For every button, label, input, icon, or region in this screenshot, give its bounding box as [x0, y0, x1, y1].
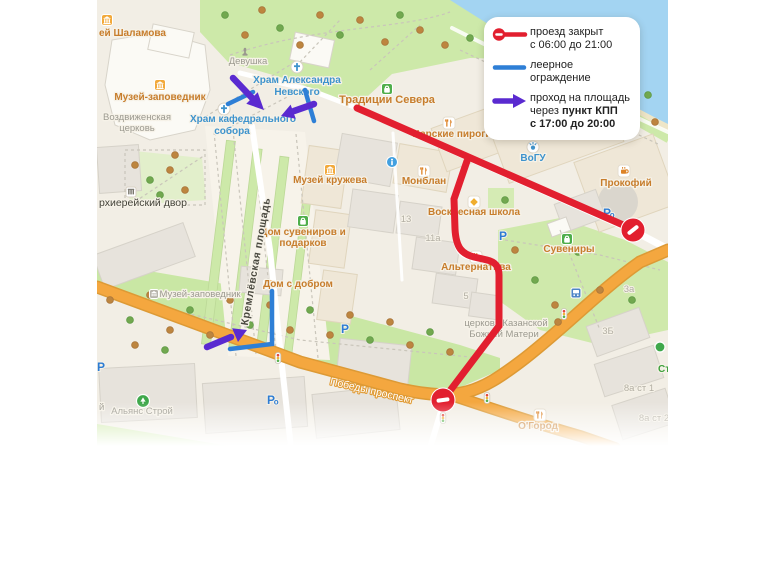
bus-stop-icon: [571, 288, 581, 298]
parking-icon-1: Р: [97, 360, 105, 374]
alexander-nevsky-line2-label: Невского: [274, 87, 319, 98]
parking-icon-2: Р: [341, 322, 349, 336]
kazan-church-line1-label: церковь Казанской: [464, 318, 547, 329]
cut-label-y-label: й: [99, 402, 104, 413]
legend-item-entrance-arrow: проход на площадьчерез пункт КППс 17:00 …: [492, 92, 630, 131]
bldg-8a-st1-label: 8а ст 1: [624, 383, 654, 394]
traffic-light-icon-4: [561, 309, 567, 320]
kazan-church-line2-label: Божией Матери: [469, 329, 539, 340]
no-entry-icon-2: [431, 388, 455, 412]
parking-icon-5: Р: [499, 229, 507, 243]
barrier-symbol: [492, 59, 530, 80]
cafe-icon-2: [618, 165, 630, 177]
cut-label-st-label: Ст: [658, 364, 670, 375]
legend-item-barrier: леерноеограждение: [492, 59, 630, 85]
prokofiy-label: Прокофий: [600, 177, 651, 189]
food-icon-3: [534, 409, 546, 421]
vozdvizhenskaya-line1-label: Воздвиженская: [103, 112, 171, 123]
alexander-nevsky-line1-label: Храм Александра: [253, 75, 341, 86]
food-icon-1: [443, 117, 455, 129]
closed-road-symbol: [492, 27, 528, 42]
cathedral-line1-label: Храм кафедрального: [190, 113, 296, 125]
bishops-court-label: рхиерейский двор: [99, 197, 187, 209]
vogu-label: ВоГУ: [520, 153, 546, 164]
barrier-symbol: [492, 60, 528, 75]
svg-text:о: о: [274, 398, 279, 407]
lawn-small: [488, 188, 514, 208]
traffic-light-icon-1: [275, 353, 281, 364]
bldg-3a-label: 3а: [624, 284, 635, 295]
info-icon: [387, 157, 398, 168]
event-poster: РРРоРоР ей ШаламоваМузей-заповедникВоздв…: [0, 0, 760, 570]
lace-museum-label: Музей кружева: [293, 175, 367, 186]
bldg-8a-st2-label: 8а ст 2: [639, 413, 669, 424]
cathedral-line2-label: собора: [214, 125, 250, 137]
svg-text:Р: Р: [341, 322, 349, 336]
svg-text:Р: Р: [97, 360, 105, 374]
suveniry-label: Сувениры: [543, 244, 594, 255]
landmark-icon: [126, 187, 136, 197]
shop-icon-3: [562, 234, 573, 245]
map-canvas: РРРоРоР ей ШаламоваМузей-заповедникВоздв…: [0, 0, 760, 450]
map: РРРоРоР ей ШаламоваМузей-заповедникВоздв…: [0, 0, 760, 450]
museum-icon-2: [155, 80, 166, 91]
shop-icon-1: [382, 84, 393, 95]
traditsii-severa-label: Традиции Севера: [339, 94, 436, 106]
ogorod-label: О'Город: [518, 421, 559, 432]
green-dot-icon: [655, 342, 665, 352]
entrance-arrow-symbol: [492, 93, 528, 109]
legend-item-text: леерноеограждение: [530, 59, 591, 85]
souvenir-house-line1-label: Дом сувениров и: [260, 227, 346, 238]
museum-shalamov-label: ей Шаламова: [99, 28, 166, 39]
dom-s-dobrom-label: Дом с добром: [263, 278, 333, 290]
banner: ВХОД НА КРЕМЛЁВСКУЮ ПЛОЩАДЬ 27 ДЕКАБРЯ в…: [0, 445, 760, 570]
museum-icon-3: [325, 165, 336, 176]
traffic-light-icon-2: [440, 413, 446, 424]
traffic-light-icon-3: [484, 393, 490, 404]
museum-icon-4: [150, 290, 159, 299]
sunday-school-label: Воскресная школа: [428, 207, 520, 218]
no-entry-icon-1: [621, 218, 645, 242]
vozdvizhenskaya-line2-label: церковь: [119, 123, 154, 134]
bldg-5-label: 5: [463, 291, 468, 302]
museum-reserve-label: Музей-заповедник: [114, 92, 206, 103]
legend-item-closed-road: проезд закрытс 06:00 до 21:00: [492, 26, 630, 52]
museum-icon-1: [102, 15, 113, 26]
shop-icon-2: [298, 216, 309, 227]
alyans-stroy-label: Альянс Строй: [111, 406, 173, 417]
souvenir-house-line2-label: подарков: [279, 238, 326, 249]
legend-item-text: проезд закрытс 06:00 до 21:00: [530, 26, 612, 52]
svg-text:Р: Р: [499, 229, 507, 243]
univ-icon: [527, 141, 539, 153]
museum-reserve-park-label: Музей-заповедник: [159, 289, 241, 300]
devushka-statue-label: Девушка: [229, 56, 268, 67]
entrance-arrow-symbol: [492, 92, 530, 114]
legend-item-text: проход на площадьчерез пункт КППс 17:00 …: [530, 92, 630, 131]
monblan-label: Монблан: [402, 175, 446, 187]
bldg-13-label: 13: [401, 214, 412, 225]
bldg-3b-label: 3Б: [602, 326, 614, 337]
church-icon-1: [291, 61, 303, 73]
closed-road-symbol: [492, 26, 530, 47]
bldg-11a-label: 11а: [425, 233, 441, 244]
legend: проезд закрытс 06:00 до 21:00леерноеогра…: [484, 17, 640, 140]
